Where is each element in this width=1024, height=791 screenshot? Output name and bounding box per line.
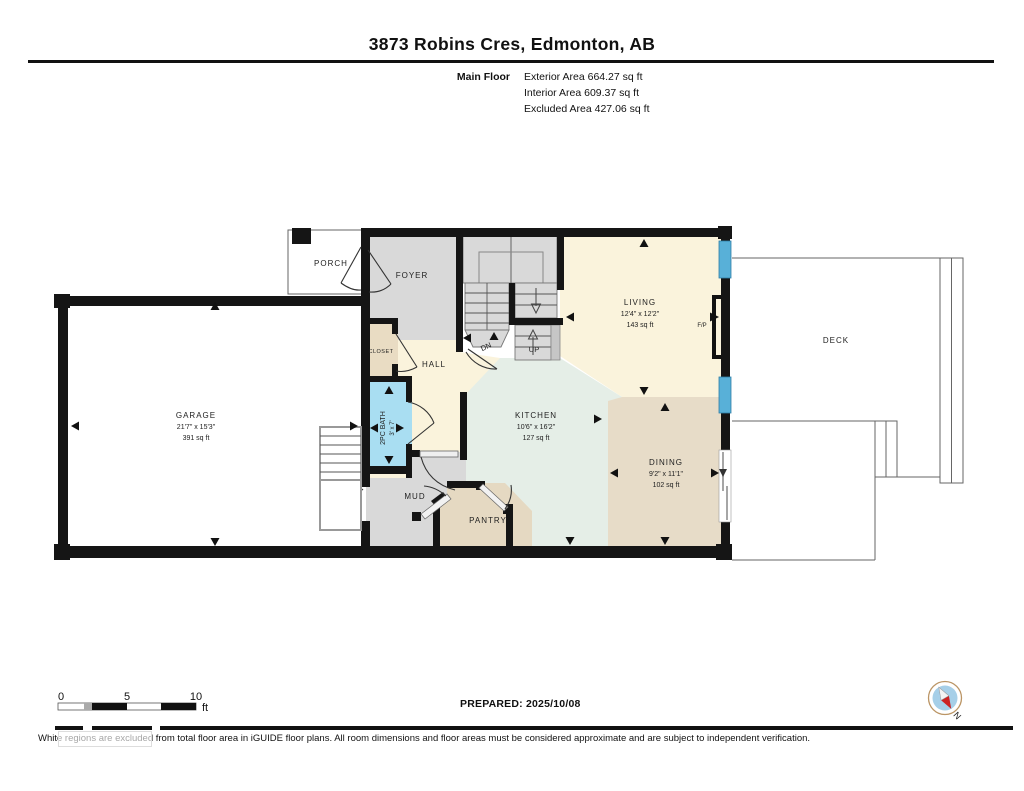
window-living-top <box>719 241 731 278</box>
label-kitchen: KITCHEN <box>515 411 557 420</box>
disclaimer-text: White regions are excluded from total fl… <box>38 733 998 744</box>
label-bath-dims: 3' x 7' <box>390 420 396 435</box>
disclaimer-cover-box <box>58 731 152 747</box>
label-kitchen-area: 127 sq ft <box>523 435 550 442</box>
window-living-bottom <box>719 377 731 413</box>
label-living-dims: 12'4" x 12'2" <box>621 311 660 318</box>
compass-icon: N <box>929 682 964 722</box>
label-dining-area: 102 sq ft <box>653 482 680 489</box>
label-garage-area: 391 sq ft <box>183 435 210 442</box>
footer-rule <box>160 726 1013 730</box>
prepared-date: PREPARED: 2025/10/08 <box>460 698 581 710</box>
porch-pillar <box>292 228 311 244</box>
sliding-door-dining <box>719 450 731 522</box>
label-bath: 2PC BATH <box>380 411 387 445</box>
deck-outline <box>732 258 963 560</box>
scale-tick-10: 10 <box>190 691 202 703</box>
footer-rule-dash1 <box>55 726 83 730</box>
label-hall: HALL <box>422 360 446 369</box>
label-mud: MUD <box>404 492 425 501</box>
label-garage-dims: 21'7" x 15'3" <box>177 424 216 431</box>
scale-bar: 0 5 10 ft <box>58 691 208 714</box>
label-living-area: 143 sq ft <box>627 322 654 329</box>
label-closet: CLOSET <box>368 349 393 355</box>
floorplan-page: 3873 Robins Cres, Edmonton, AB Main Floo… <box>0 0 1024 791</box>
scale-unit: ft <box>202 702 208 714</box>
label-living: LIVING <box>624 298 656 307</box>
label-garage: GARAGE <box>176 411 216 420</box>
floorplan-drawing: PORCH FOYER GARAGE 21'7" x 15'3" 391 sq … <box>0 0 1024 791</box>
label-dining: DINING <box>649 458 683 467</box>
label-porch: PORCH <box>314 259 348 268</box>
label-kitchen-dims: 10'6" x 16'2" <box>517 424 556 431</box>
label-deck: DECK <box>823 336 849 345</box>
footer-rule-dash2 <box>92 726 152 730</box>
scale-tick-0: 0 <box>58 691 64 703</box>
label-pantry: PANTRY <box>469 516 507 525</box>
label-stairs-up: UP <box>529 345 539 354</box>
garage-stairs <box>320 427 361 530</box>
scale-tick-5: 5 <box>124 691 130 703</box>
label-fireplace: F/P <box>697 323 706 329</box>
label-foyer: FOYER <box>396 271 429 280</box>
label-dining-dims: 9'2" x 11'1" <box>649 471 683 478</box>
